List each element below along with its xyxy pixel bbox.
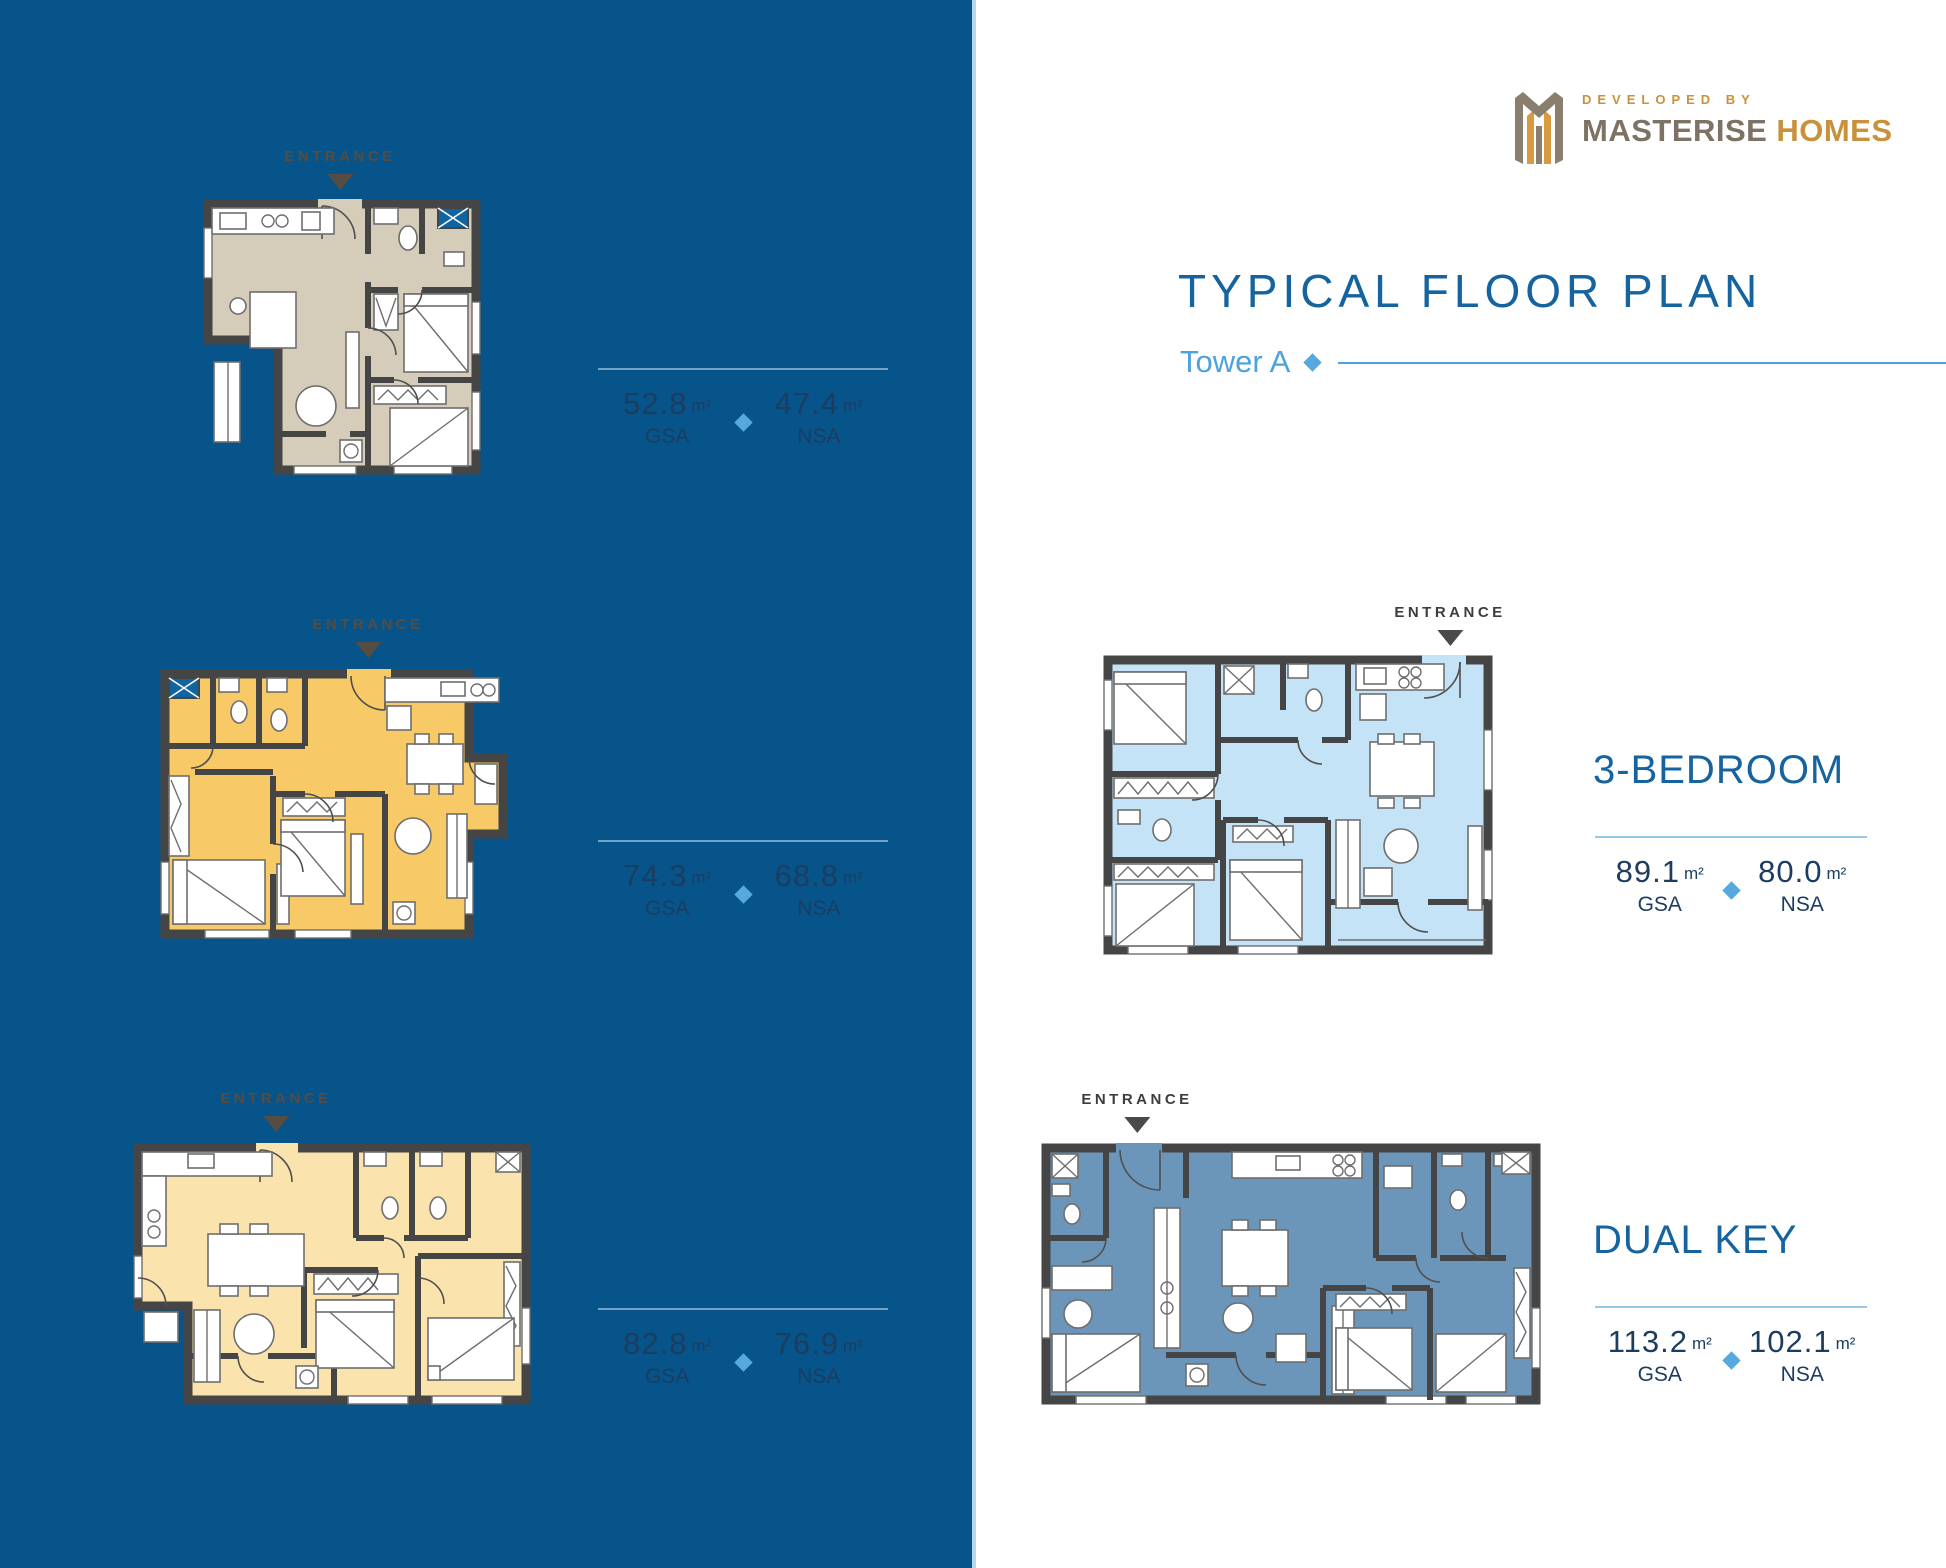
entrance-marker-plan-2: ENTRANCE <box>312 616 423 658</box>
entrance-marker-plan-1: ENTRANCE <box>284 148 395 190</box>
nsa-unit: m² <box>843 868 863 887</box>
nsa-label: NSA <box>750 1365 889 1389</box>
page-title: TYPICAL FLOOR PLAN <box>1178 264 1762 318</box>
entrance-arrow-icon <box>263 1116 289 1132</box>
gsa-label: GSA <box>598 1365 737 1389</box>
nsa-unit: m² <box>1836 1334 1856 1353</box>
gsa-unit: m² <box>1692 1334 1712 1353</box>
entrance-label: ENTRANCE <box>220 1090 331 1107</box>
gsa-measure: 89.1m² GSA <box>1595 854 1725 917</box>
plan-name-3bedroom: 3-BEDROOM <box>1593 748 1844 793</box>
gsa-value: 52.8 <box>623 386 687 421</box>
gsa-label: GSA <box>598 425 737 449</box>
logo-developed-by: DEVELOPED BY <box>1582 92 1893 107</box>
nsa-measure: 68.8m² NSA <box>750 858 889 921</box>
gsa-unit: m² <box>692 868 712 887</box>
measurements-plan-3: 82.8m² GSA 76.9m² NSA <box>598 1308 888 1389</box>
gsa-label: GSA <box>598 897 737 921</box>
gsa-value-line: 82.8m² <box>598 1326 737 1362</box>
gsa-value: 74.3 <box>623 858 687 893</box>
gsa-label: GSA <box>1595 893 1725 917</box>
nsa-label: NSA <box>750 897 889 921</box>
nsa-label: NSA <box>1738 1363 1868 1387</box>
entrance-marker-plan-3: ENTRANCE <box>220 1090 331 1132</box>
nsa-value: 47.4 <box>775 386 839 421</box>
nsa-label: NSA <box>1738 893 1868 917</box>
nsa-value: 102.1 <box>1749 1324 1832 1359</box>
entrance-arrow-icon <box>355 642 381 658</box>
entrance-label: ENTRANCE <box>312 616 423 633</box>
nsa-unit: m² <box>843 396 863 415</box>
gsa-unit: m² <box>692 396 712 415</box>
gsa-value: 89.1 <box>1616 854 1680 889</box>
floor-plan-dualkey <box>1036 1138 1546 1420</box>
masterise-homes-logo: DEVELOPED BY MASTERISEHOMES <box>1510 82 1893 166</box>
logo-brand-name: MASTERISEHOMES <box>1582 113 1893 149</box>
nsa-value-line: 47.4m² <box>750 386 889 422</box>
entrance-marker-3bedroom: ENTRANCE <box>1394 604 1505 646</box>
nsa-measure: 80.0m² NSA <box>1738 854 1868 917</box>
logo-text: DEVELOPED BY MASTERISEHOMES <box>1582 82 1893 149</box>
gsa-value-line: 74.3m² <box>598 858 737 894</box>
gsa-unit: m² <box>1684 864 1704 883</box>
plan-name-dualkey: DUAL KEY <box>1593 1218 1797 1263</box>
floor-plan-2 <box>155 664 513 946</box>
nsa-unit: m² <box>1827 864 1847 883</box>
logo-name-primary: MASTERISE <box>1582 113 1767 148</box>
gsa-value: 113.2 <box>1608 1324 1688 1359</box>
measurements-plan-2: 74.3m² GSA 68.8m² NSA <box>598 840 888 921</box>
nsa-unit: m² <box>843 1336 863 1355</box>
nsa-value-line: 80.0m² <box>1738 854 1868 890</box>
entrance-label: ENTRANCE <box>1081 1091 1192 1108</box>
floor-plan-3 <box>128 1138 536 1426</box>
measurements-3bedroom: 89.1m² GSA 80.0m² NSA <box>1595 836 1867 917</box>
page-subtitle: Tower A <box>1180 344 1290 380</box>
entrance-label: ENTRANCE <box>284 148 395 165</box>
nsa-value-line: 76.9m² <box>750 1326 889 1362</box>
gsa-measure: 113.2m² GSA <box>1595 1324 1725 1387</box>
gsa-value-line: 52.8m² <box>598 386 737 422</box>
logo-name-secondary: HOMES <box>1776 113 1892 148</box>
subtitle-rule <box>1338 362 1946 364</box>
floor-plan-1 <box>198 194 486 480</box>
diamond-icon <box>1303 353 1321 371</box>
gsa-unit: m² <box>692 1336 712 1355</box>
nsa-measure: 47.4m² NSA <box>750 386 889 449</box>
nsa-measure: 76.9m² NSA <box>750 1326 889 1389</box>
nsa-value-line: 68.8m² <box>750 858 889 894</box>
nsa-value: 68.8 <box>775 858 839 893</box>
nsa-value-line: 102.1m² <box>1738 1324 1868 1360</box>
nsa-value: 80.0 <box>1758 854 1822 889</box>
nsa-value: 76.9 <box>775 1326 839 1361</box>
floor-plan-3bedroom <box>1098 650 1498 968</box>
gsa-label: GSA <box>1595 1363 1725 1387</box>
measurements-plan-1: 52.8m² GSA 47.4m² NSA <box>598 368 888 449</box>
entrance-arrow-icon <box>1437 630 1463 646</box>
gsa-measure: 52.8m² GSA <box>598 386 737 449</box>
gsa-value: 82.8 <box>623 1326 687 1361</box>
gsa-measure: 74.3m² GSA <box>598 858 737 921</box>
gsa-measure: 82.8m² GSA <box>598 1326 737 1389</box>
nsa-measure: 102.1m² NSA <box>1738 1324 1868 1387</box>
entrance-arrow-icon <box>1124 1117 1150 1133</box>
entrance-label: ENTRANCE <box>1394 604 1505 621</box>
masterise-logo-mark-icon <box>1510 82 1568 166</box>
entrance-marker-dualkey: ENTRANCE <box>1081 1091 1192 1133</box>
entrance-arrow-icon <box>327 174 353 190</box>
gsa-value-line: 113.2m² <box>1595 1324 1725 1360</box>
measurements-dualkey: 113.2m² GSA 102.1m² NSA <box>1595 1306 1867 1387</box>
nsa-label: NSA <box>750 425 889 449</box>
gsa-value-line: 89.1m² <box>1595 854 1725 890</box>
